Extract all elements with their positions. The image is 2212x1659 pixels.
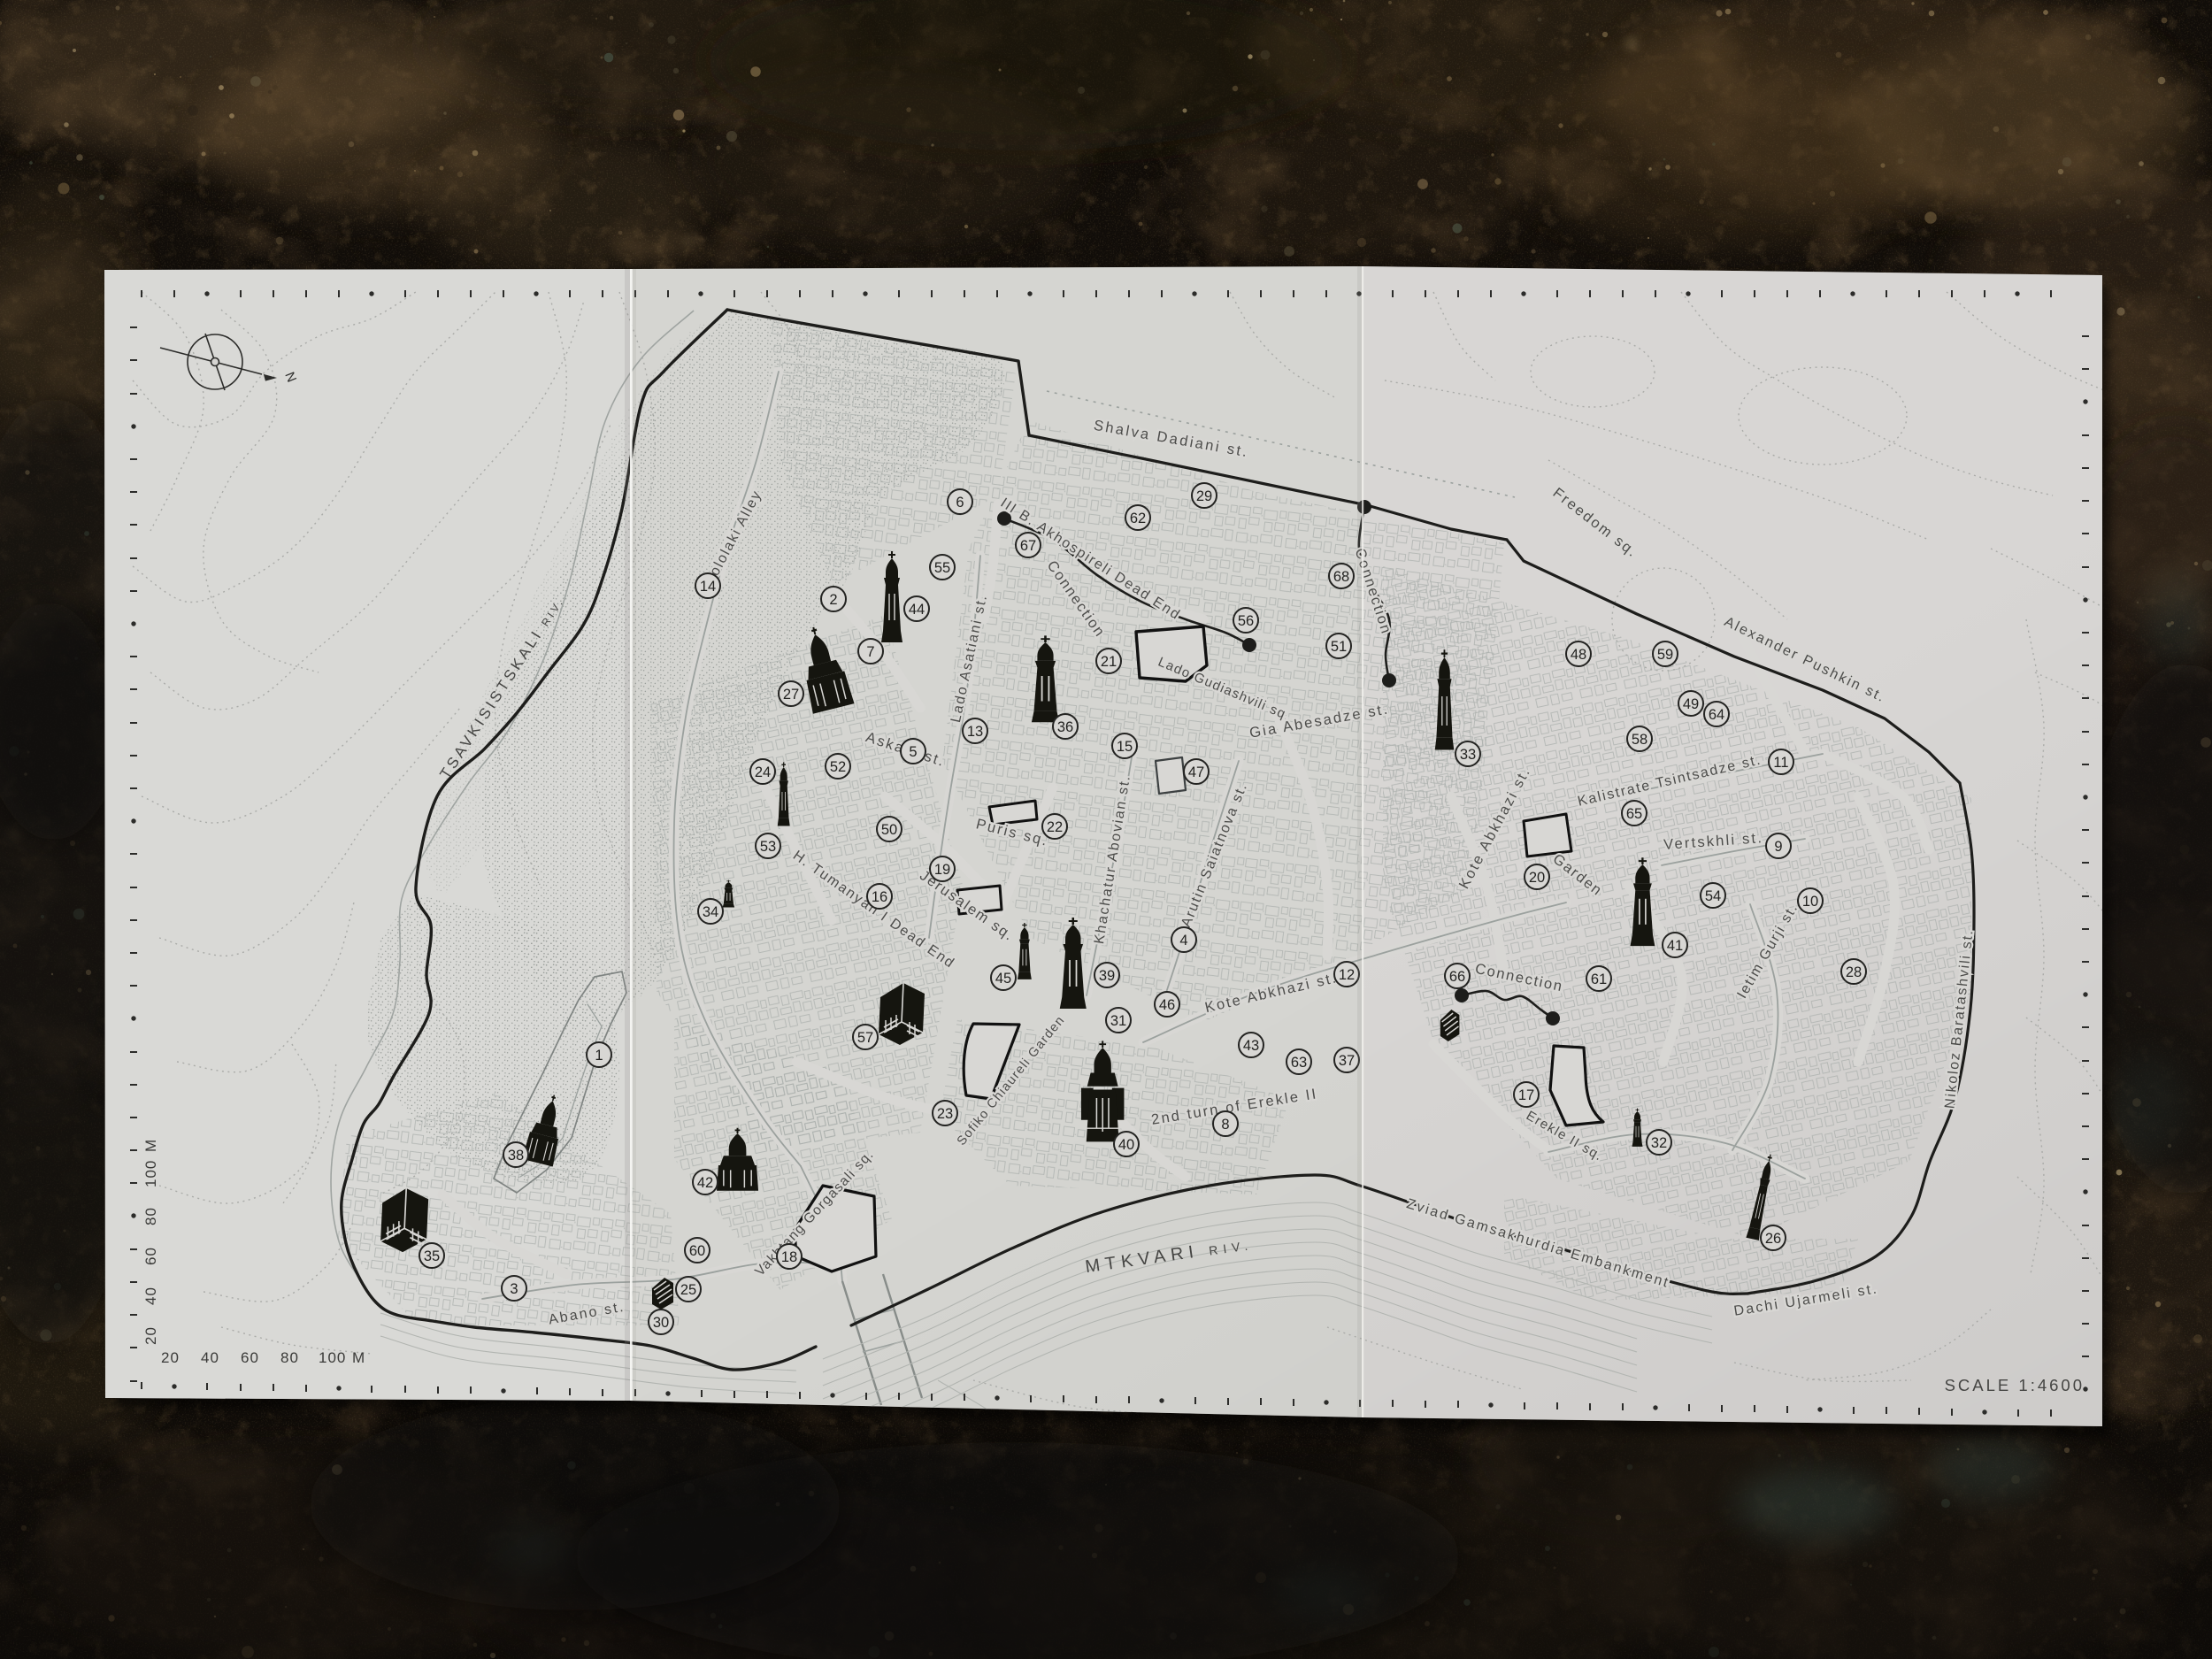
- svg-text:23: 23: [937, 1106, 953, 1122]
- svg-text:49: 49: [1683, 696, 1699, 712]
- svg-text:47: 47: [1188, 764, 1204, 780]
- svg-text:3: 3: [510, 1281, 518, 1297]
- svg-text:24: 24: [755, 764, 771, 780]
- svg-text:45: 45: [995, 971, 1011, 987]
- svg-text:42: 42: [697, 1175, 713, 1191]
- svg-text:66: 66: [1449, 969, 1465, 985]
- svg-text:46: 46: [1159, 997, 1175, 1013]
- svg-text:13: 13: [967, 724, 983, 740]
- svg-text:33: 33: [1460, 747, 1476, 763]
- svg-text:SCALE 1:4600: SCALE 1:4600: [1945, 1376, 2085, 1394]
- svg-text:4: 4: [1179, 933, 1187, 949]
- svg-text:10: 10: [1802, 894, 1818, 910]
- svg-text:22: 22: [1047, 819, 1063, 835]
- svg-text:44: 44: [909, 602, 925, 618]
- svg-text:28: 28: [1846, 964, 1862, 980]
- svg-text:57: 57: [857, 1030, 873, 1046]
- svg-text:36: 36: [1057, 719, 1073, 735]
- svg-text:56: 56: [1238, 613, 1254, 629]
- svg-text:30: 30: [653, 1315, 669, 1331]
- svg-text:58: 58: [1632, 732, 1647, 748]
- svg-text:63: 63: [1291, 1055, 1307, 1071]
- svg-text:59: 59: [1657, 647, 1673, 663]
- svg-text:29: 29: [1196, 488, 1212, 504]
- svg-text:16: 16: [872, 889, 887, 905]
- svg-text:31: 31: [1110, 1013, 1126, 1029]
- svg-text:9: 9: [1774, 839, 1782, 855]
- svg-text:53: 53: [760, 839, 776, 855]
- svg-text:62: 62: [1130, 511, 1146, 526]
- svg-text:32: 32: [1651, 1135, 1667, 1151]
- svg-text:14: 14: [700, 579, 716, 595]
- svg-text:5: 5: [909, 744, 917, 760]
- svg-text:26: 26: [1765, 1231, 1781, 1247]
- svg-text:67: 67: [1020, 538, 1036, 554]
- svg-text:64: 64: [1709, 707, 1724, 723]
- svg-text:1: 1: [595, 1048, 603, 1064]
- svg-text:19: 19: [934, 862, 950, 878]
- svg-text:12: 12: [1339, 967, 1355, 983]
- svg-text:65: 65: [1626, 806, 1642, 822]
- svg-text:54: 54: [1705, 888, 1721, 904]
- svg-text:52: 52: [830, 759, 846, 775]
- svg-text:48: 48: [1571, 647, 1586, 663]
- svg-text:40: 40: [1118, 1137, 1134, 1153]
- svg-text:38: 38: [508, 1148, 524, 1164]
- svg-text:18: 18: [781, 1249, 797, 1265]
- svg-text:43: 43: [1243, 1038, 1259, 1054]
- svg-text:2: 2: [829, 592, 837, 608]
- svg-text:61: 61: [1591, 972, 1607, 987]
- svg-text:17: 17: [1518, 1087, 1534, 1103]
- svg-text:7: 7: [866, 644, 874, 660]
- svg-text:21: 21: [1101, 654, 1117, 670]
- svg-text:8: 8: [1221, 1117, 1229, 1133]
- svg-text:34: 34: [703, 904, 718, 920]
- svg-text:11: 11: [1773, 755, 1788, 771]
- svg-text:6: 6: [956, 495, 964, 511]
- svg-text:35: 35: [424, 1248, 440, 1264]
- svg-text:37: 37: [1339, 1053, 1355, 1069]
- svg-text:68: 68: [1333, 569, 1349, 585]
- svg-text:27: 27: [783, 687, 799, 703]
- svg-text:55: 55: [934, 560, 950, 576]
- svg-text:39: 39: [1099, 968, 1115, 984]
- svg-text:25: 25: [680, 1282, 696, 1298]
- svg-text:20: 20: [1529, 870, 1545, 886]
- svg-text:60: 60: [689, 1243, 705, 1259]
- svg-text:51: 51: [1331, 639, 1347, 655]
- svg-text:15: 15: [1117, 739, 1133, 755]
- svg-text:50: 50: [881, 822, 897, 838]
- svg-text:41: 41: [1667, 938, 1683, 954]
